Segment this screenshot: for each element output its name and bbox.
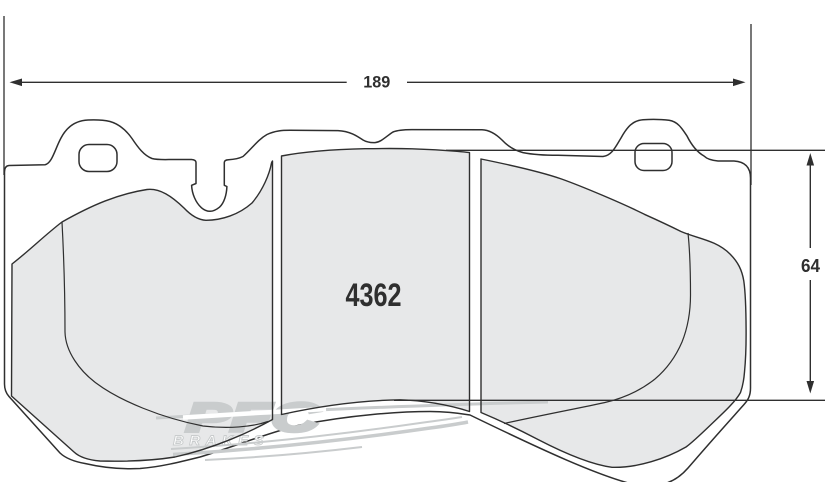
svg-text:189: 189 — [363, 73, 390, 92]
svg-text:4362: 4362 — [346, 277, 402, 313]
svg-text:64: 64 — [801, 256, 820, 276]
